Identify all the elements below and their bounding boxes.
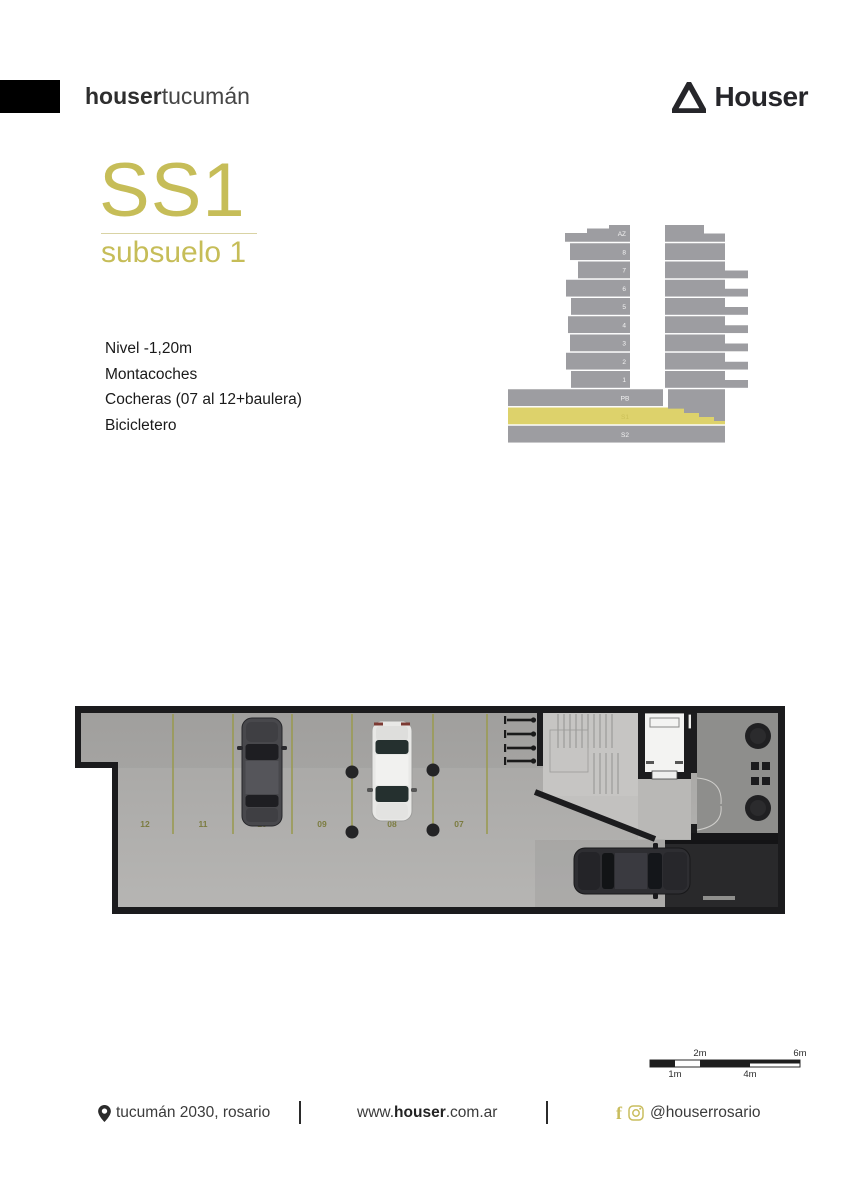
website-tld: .com.ar: [446, 1104, 498, 1122]
spot-label-07: 07: [454, 819, 464, 829]
level-subtitle: subsuelo 1: [101, 236, 246, 270]
car-dark-parked: [237, 718, 287, 826]
project-brand-bold: houser: [85, 83, 162, 109]
detail-cocheras: Cocheras (07 al 12+baulera): [105, 387, 302, 413]
floor-label-s1: S1: [621, 414, 629, 421]
floor-label-s2: S2: [621, 432, 629, 439]
brochure-page: housertucumán Houser SS1 subsuelo 1 Nive…: [0, 0, 844, 1200]
footer-social[interactable]: f @houserrosario: [616, 1101, 761, 1125]
floor-label-7: 7: [622, 268, 626, 275]
floor-label-2: 2: [622, 359, 626, 366]
car-dark-ramp: [574, 843, 690, 899]
level-details: Nivel -1,20m Montacoches Cocheras (07 al…: [105, 336, 302, 438]
website-www: www.: [357, 1104, 394, 1122]
floor-label-1: 1: [622, 377, 626, 384]
footer-divider: [299, 1101, 301, 1124]
floor-label-5: 5: [622, 304, 626, 311]
floor-label-pb: PB: [621, 396, 630, 403]
title-underline: [101, 233, 257, 234]
houser-logo: Houser: [672, 79, 808, 115]
scale-label-1m: 1m: [668, 1069, 681, 1080]
footer-divider: [546, 1101, 548, 1124]
facebook-icon[interactable]: f: [616, 1104, 622, 1122]
floor-label-6: 6: [622, 286, 626, 293]
level-code: SS1: [99, 153, 246, 229]
instagram-icon[interactable]: [628, 1105, 644, 1121]
scale-label-2m: 2m: [693, 1048, 706, 1059]
building-elevation-diagram: AZ 8 7 6 5 4 3 2 1 PB S1 S2: [508, 225, 750, 444]
floor-label-az: AZ: [618, 231, 626, 238]
machine-room: [691, 713, 778, 840]
spot-label-09: 09: [317, 819, 327, 829]
location-pin-icon: [98, 1105, 111, 1122]
footer-address-text: tucumán 2030, rosario: [116, 1104, 270, 1122]
scale-label-4m: 4m: [743, 1069, 756, 1080]
project-brand-light: tucumán: [162, 83, 250, 109]
spot-label-11: 11: [199, 819, 208, 829]
footer-website[interactable]: www.houser.com.ar: [357, 1101, 497, 1125]
detail-nivel: Nivel -1,20m: [105, 336, 302, 362]
houser-logo-text: Houser: [715, 81, 808, 113]
floor-plan: 12 11 10 09 08 07: [75, 706, 785, 914]
project-brand: housertucumán: [85, 80, 250, 113]
scale-bar: 2m 6m 1m 4m: [646, 1046, 816, 1080]
spot-label-12: 12: [140, 819, 150, 829]
scale-label-6m: 6m: [793, 1048, 806, 1059]
corner-black-mark: [0, 80, 60, 113]
floor-label-4: 4: [622, 322, 626, 329]
website-houser: houser: [394, 1104, 446, 1122]
detail-montacoches: Montacoches: [105, 362, 302, 388]
detail-bicicletero: Bicicletero: [105, 413, 302, 439]
floor-label-3: 3: [622, 341, 626, 348]
elevator-montacoches: [638, 713, 697, 779]
houser-triangle-icon: [672, 82, 706, 113]
car-white-parked: [367, 721, 417, 821]
floor-label-8: 8: [622, 249, 626, 256]
footer-address: tucumán 2030, rosario: [98, 1101, 270, 1125]
social-handle: @houserrosario: [650, 1104, 761, 1122]
